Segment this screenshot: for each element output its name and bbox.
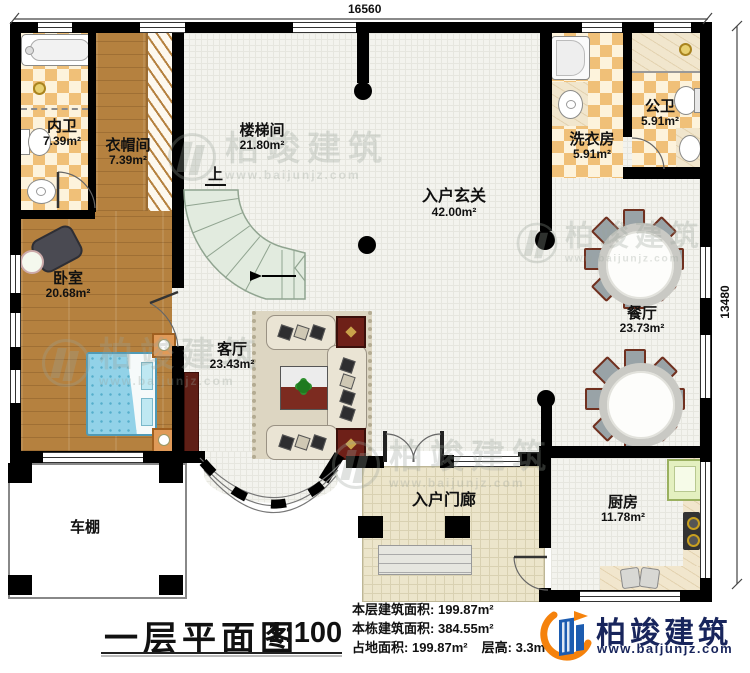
room-area: 11.78m² [601,511,645,525]
kitchen-sink [621,568,659,588]
stat-label: 本层建筑面积: [352,602,434,617]
bed [86,352,157,436]
cushion [339,357,355,373]
room-area: 5.91m² [641,115,679,129]
sink [558,90,583,119]
wall-bedroom-right-lower [172,346,184,463]
stat-line: 本层建筑面积: 199.87m² [352,600,545,619]
sink [679,135,701,162]
stairs-up-label: 上 [205,163,226,186]
room-label-neiwei: 内卫 7.39m² [43,118,81,149]
carport-post [159,463,183,483]
room-area: 20.68m² [46,287,91,301]
plant-icon [297,380,310,393]
side-table [336,316,366,348]
sink-basin [620,567,642,589]
bathtub-basin [30,39,90,61]
wall-foyer-laundry [540,33,552,231]
stool [20,250,44,274]
room-name: 厨房 [601,494,645,511]
window [10,370,21,403]
tv-cabinet [184,372,199,458]
cushion [339,389,355,405]
room-area: 23.73m² [620,322,665,336]
room-area: 42.00m² [422,206,486,220]
washing-machine [551,36,590,80]
window [43,452,143,463]
wall-stub-dining [541,404,552,452]
stat-line: 占地面积: 199.87m²层高: 3.3m [352,638,545,657]
room-name: 内卫 [43,118,81,135]
room-name: 客厅 [210,341,255,358]
wall-stub-stair [357,33,369,83]
room-area: 5.91m² [569,148,614,162]
decor-icon [345,326,356,337]
cushion [294,434,310,450]
shower-faucet-icon [679,43,692,56]
room-area: 7.39m² [43,135,81,149]
sink-drain-icon [36,187,46,196]
bathtub-drain-icon [25,46,34,55]
window [140,22,185,33]
burner-icon [687,517,700,530]
area-statistics: 本层建筑面积: 199.87m² 本栋建筑面积: 384.55m² 占地面积: … [352,600,545,657]
lamp-icon [158,434,170,446]
entry-door-leaf [383,431,387,462]
room-name: 餐厅 [620,305,665,322]
sink [27,179,56,204]
room-name: 卧室 [46,270,91,287]
wall-laundry-bath2 [623,33,632,137]
stat-value: 384.55m² [438,621,494,636]
wall-entry-left [346,456,384,468]
bathtub [21,34,95,66]
window [10,255,21,293]
room-label-menlang: 入户门廊 [412,492,476,510]
window [293,22,356,33]
sofa-top [266,315,336,350]
stat-label: 占地面积: [352,640,408,655]
coffee-table [280,366,328,410]
pillow [141,398,153,426]
room-label-yimaojian: 衣帽间 7.39m² [105,137,150,168]
cushion [293,324,309,340]
company-logo-icon [540,605,594,668]
wall-kitchen-left-upper [539,446,551,548]
shower-divider [632,71,700,73]
room-name: 公卫 [641,98,679,115]
room-label-keting: 客厅 23.43m² [210,341,255,372]
dining-set [578,342,688,452]
wall-bath1 [88,33,96,212]
window [654,22,691,33]
porch-post [358,516,383,538]
wall-bay-left [186,451,205,463]
window [582,22,622,33]
burner-icon [687,534,700,547]
room-label-gongwei: 公卫 5.91m² [641,98,679,129]
wall-bath2-bottom [623,167,712,179]
cushion [339,373,355,389]
decor-icon [345,438,356,449]
carport-post [159,575,183,595]
entry-door-leaf [440,431,444,462]
room-label-chufang: 厨房 11.78m² [601,494,645,525]
carport-post [8,575,32,595]
window [700,247,711,298]
room-label-canting: 餐厅 23.73m² [620,305,665,336]
floor-plan: 柏竣建筑 www.baijunjz.com 柏竣建筑 www.baijunjz.… [0,0,750,673]
stat-line: 本栋建筑面积: 384.55m² [352,619,545,638]
wardrobe [146,33,174,211]
fridge-door [674,466,696,492]
round-table [599,363,683,447]
wall-bedroom-right-upper [172,33,184,288]
window [10,313,21,347]
cushion [278,434,294,450]
stat-label: 层高: [482,640,512,655]
window [38,22,72,33]
plan-scale: 1:100 [268,617,342,650]
porch-post [445,516,470,538]
company-website: www.baijunjz.com [597,641,733,656]
cushion [309,324,325,340]
cushion [310,434,326,450]
room-label-chepeng: 车棚 [70,519,100,536]
stat-label: 本栋建筑面积: [352,621,434,636]
room-label-xiyifang: 洗衣房 5.91m² [569,131,614,162]
room-label-xuanguan: 入户玄关 42.00m² [422,188,486,220]
room-area: 7.39m² [105,154,150,168]
room-name: 入户门廊 [412,492,476,510]
room-label-loutijian: 楼梯间 21.80m² [239,122,284,153]
dimension-top: 16560 [348,2,381,16]
wall-kitchen-top [541,446,700,458]
dimension-right: 13480 [718,272,732,332]
room-area: 23.43m² [210,358,255,372]
carport-post [8,463,32,483]
window [580,591,680,602]
sofa-right [327,345,367,434]
sofa-bottom [266,425,338,460]
room-name: 车棚 [70,519,100,536]
dining-set [577,202,687,312]
stat-value: 199.87m² [412,640,468,655]
room-label-woshi: 卧室 20.68m² [46,270,91,301]
cushion [339,405,355,421]
cushion [277,324,293,340]
shower-curtain-line [21,108,88,110]
lamp-icon [158,339,170,351]
wall-bath1-bottom [10,210,95,219]
title-underline [101,652,342,654]
room-area: 21.80m² [239,139,284,153]
room-name: 衣帽间 [105,137,150,154]
room-name: 楼梯间 [239,122,284,139]
window [700,335,711,398]
stat-value: 199.87m² [438,602,494,617]
pillow [141,362,153,390]
sink-basin [639,567,661,589]
window [454,456,520,467]
round-table [598,223,682,307]
shower-faucet-icon [33,82,46,95]
washer-drum-icon [556,40,585,76]
sink-drain-icon [566,100,576,109]
stove [683,512,700,550]
room-name: 洗衣房 [569,131,614,148]
window [700,462,711,578]
porch-steps [378,545,472,575]
room-name: 入户玄关 [422,188,486,206]
